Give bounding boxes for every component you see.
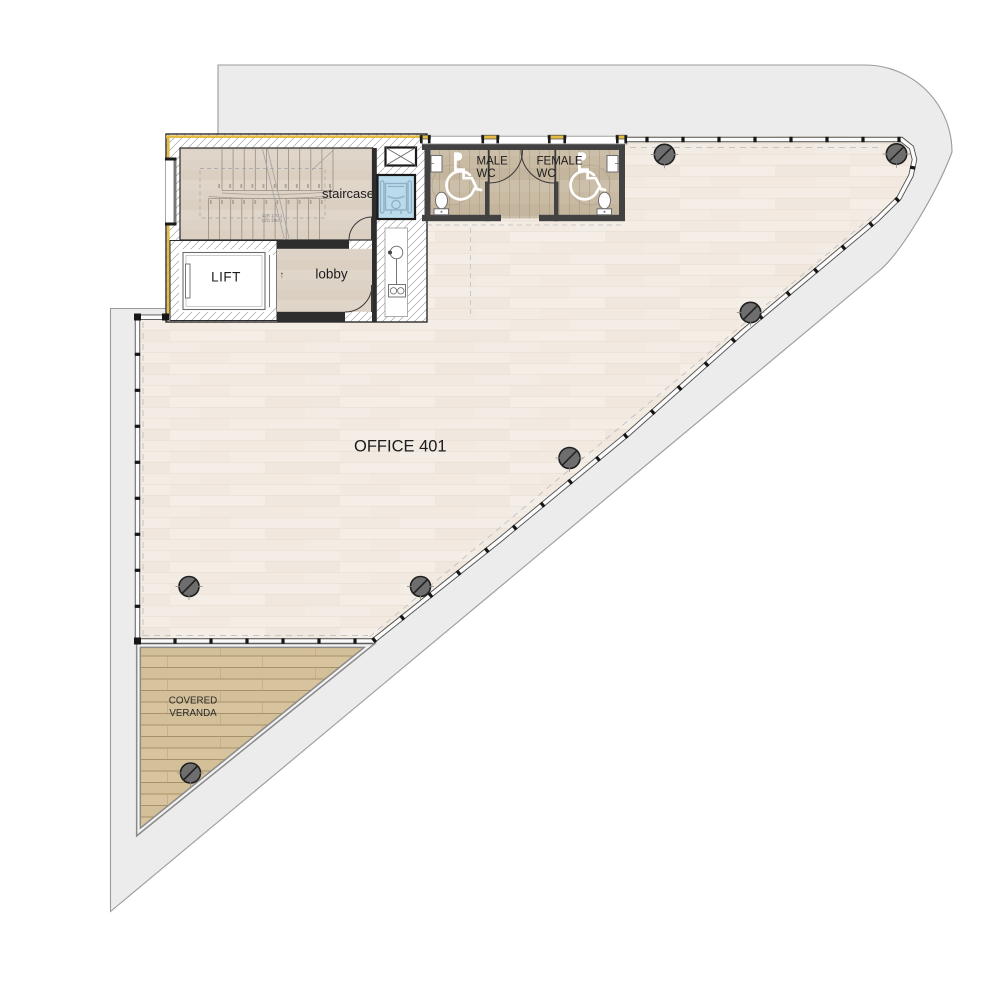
svg-text:LIFT: LIFT	[211, 270, 241, 285]
svg-text:WC: WC	[477, 168, 496, 180]
svg-text:WC: WC	[537, 168, 556, 180]
svg-text:12G 280 1: 12G 280 1	[261, 218, 283, 223]
svg-text:VERANDA: VERANDA	[169, 708, 217, 719]
svg-text:staircase: staircase	[322, 186, 374, 201]
svg-text:FEMALE: FEMALE	[537, 156, 583, 168]
svg-text:↑: ↑	[280, 270, 285, 281]
svg-text:lobby: lobby	[315, 267, 348, 282]
svg-text:MALE: MALE	[477, 156, 509, 168]
svg-text:COVERED: COVERED	[169, 696, 217, 707]
svg-text:OFFICE 401: OFFICE 401	[354, 438, 447, 456]
